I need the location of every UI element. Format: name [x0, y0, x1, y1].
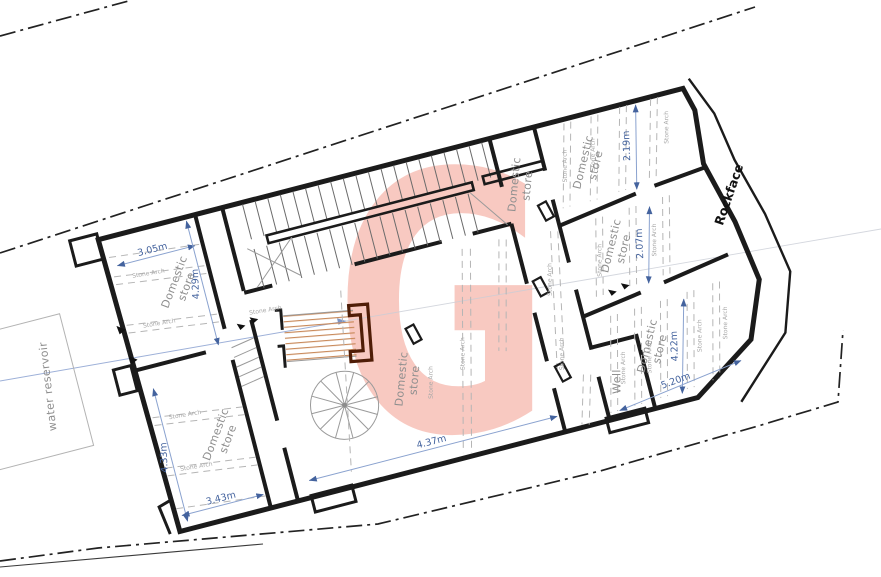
door-arrows-room-f	[607, 281, 631, 296]
stone-arch-label: Stone Arch	[663, 111, 670, 144]
dim-room-f-depth: 2.07m	[634, 228, 646, 259]
rockface-label: Rockface	[711, 162, 746, 227]
water-reservoir: water reservoir	[0, 314, 94, 517]
stone-arch-label: Stone Arch	[428, 366, 435, 399]
stone-arch-label: Stone Arch	[651, 223, 658, 256]
room-label-store-f: Domestic store	[598, 218, 636, 278]
water-reservoir-label: water reservoir	[36, 341, 59, 432]
room-label-store-b: Domestic store	[200, 406, 244, 467]
wall-room-a-b	[136, 352, 206, 370]
stone-arch-label: Stone Arch	[558, 337, 565, 370]
stone-arch-label: Stone Arch	[722, 306, 729, 339]
stone-arch-label: Stone Arch	[459, 337, 466, 370]
boundary-line-top-corner	[0, 0, 132, 36]
door-arrows-corridor	[236, 315, 260, 330]
stone-arch-label: Stone Arch	[168, 409, 202, 421]
well-label: Well	[610, 369, 623, 394]
dim-room-g-depth: 4.22m	[669, 331, 681, 362]
stone-arch-label: Stone Arch	[132, 267, 166, 279]
stone-arch-label: Stone Arch	[562, 149, 569, 182]
stone-arch-label: Stone Arch	[696, 319, 703, 352]
room-label-store-e: Domestic store	[570, 134, 608, 194]
floor-plan-drawing: G water reservoir	[0, 0, 881, 577]
rockface-label-text: Rockface	[711, 162, 746, 227]
well-label-text: Well	[610, 369, 623, 394]
stone-arch-label: Stone Arch	[249, 304, 283, 316]
notch-top-left	[70, 234, 104, 266]
dim-room-e-depth: 2.19m	[621, 130, 633, 161]
stone-arch-label: Stone Arch	[546, 263, 553, 296]
dim-room-a-depth: 4.29m	[190, 269, 202, 300]
dim-room-b-depth: 4.33m	[158, 442, 170, 473]
floor-plan-page: G water reservoir	[0, 0, 881, 577]
tan-stair-treads	[283, 310, 356, 361]
